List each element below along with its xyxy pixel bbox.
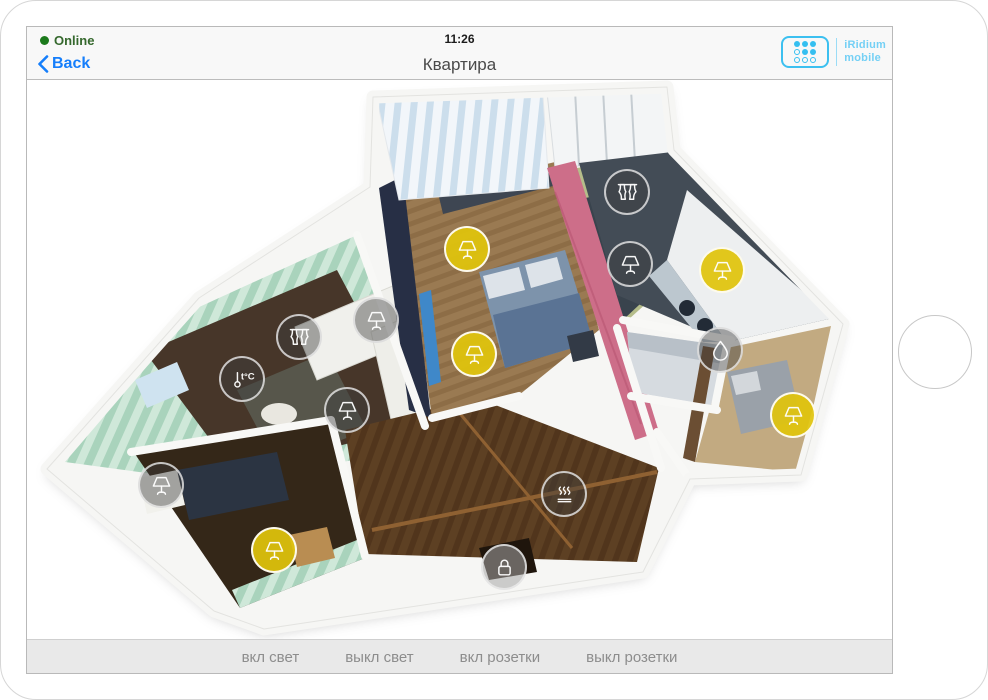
logo-dot (794, 41, 800, 47)
table-lamp-icon (461, 341, 488, 368)
device-light-office-2[interactable] (251, 527, 297, 573)
toolbar-button-1[interactable]: выкл свет (345, 649, 413, 666)
iridium-logo-mark (781, 36, 829, 68)
status-clock: 11:26 (27, 32, 892, 46)
logo-dot (802, 49, 808, 55)
table-lamp-icon (709, 257, 736, 284)
curtains-icon (286, 324, 313, 351)
logo-dot (810, 49, 816, 55)
temperature-icon: t°C (229, 366, 256, 393)
logo-divider (836, 38, 837, 66)
logo-dot (810, 41, 816, 47)
iridium-logo-dots (794, 41, 816, 63)
floorplan-area: t°C (27, 80, 892, 639)
curtains-icon (614, 179, 641, 206)
logo-line1: iRidium (844, 39, 886, 52)
logo-dot (810, 57, 816, 63)
device-water-bathroom[interactable] (697, 327, 743, 373)
svg-text:t°C: t°C (240, 371, 254, 382)
water-drop-icon (707, 337, 734, 364)
device-thermostat-living-room[interactable]: t°C (219, 356, 265, 402)
logo-dot (794, 49, 800, 55)
device-floor-heating-hall[interactable] (541, 471, 587, 517)
toolbar-button-3[interactable]: выкл розетки (586, 649, 677, 666)
navigation-bar: Online 11:26 Back Квартира iRidium mobil… (27, 27, 892, 80)
floor-heating-icon (551, 481, 578, 508)
iridium-logo-text: iRidium mobile (844, 39, 886, 64)
table-lamp-icon (261, 537, 288, 564)
lock-icon (491, 554, 518, 581)
device-light-living-room-1[interactable] (353, 297, 399, 343)
table-lamp-icon (454, 236, 481, 263)
device-light-guest-room[interactable] (770, 392, 816, 438)
table-lamp-icon (780, 402, 807, 429)
scene-toolbar: вкл светвыкл светвкл розеткивыкл розетки (27, 639, 892, 674)
table-lamp-icon (363, 307, 390, 334)
device-lock-entrance[interactable] (481, 544, 527, 590)
logo-dot (802, 57, 808, 63)
device-light-child-room[interactable] (607, 241, 653, 287)
home-button[interactable] (898, 315, 972, 389)
device-light-bedroom-bed[interactable] (451, 331, 497, 377)
device-curtain-child-room[interactable] (604, 169, 650, 215)
toolbar-button-0[interactable]: вкл свет (242, 649, 300, 666)
app-screen: Online 11:26 Back Квартира iRidium mobil… (26, 26, 893, 674)
iridium-logo: iRidium mobile (781, 36, 886, 68)
page-title: Квартира (27, 55, 892, 75)
device-light-living-room-2[interactable] (324, 387, 370, 433)
logo-line2: mobile (844, 52, 886, 65)
table-lamp-icon (617, 251, 644, 278)
device-curtain-living-room[interactable] (276, 314, 322, 360)
toolbar-button-2[interactable]: вкл розетки (460, 649, 541, 666)
table-lamp-icon (334, 397, 361, 424)
device-light-office-1[interactable] (138, 462, 184, 508)
ipad-frame: Online 11:26 Back Квартира iRidium mobil… (0, 0, 988, 700)
logo-dot (802, 41, 808, 47)
table-lamp-icon (148, 472, 175, 499)
device-light-kitchen[interactable] (699, 247, 745, 293)
logo-dot (794, 57, 800, 63)
device-light-bedroom-desk[interactable] (444, 226, 490, 272)
